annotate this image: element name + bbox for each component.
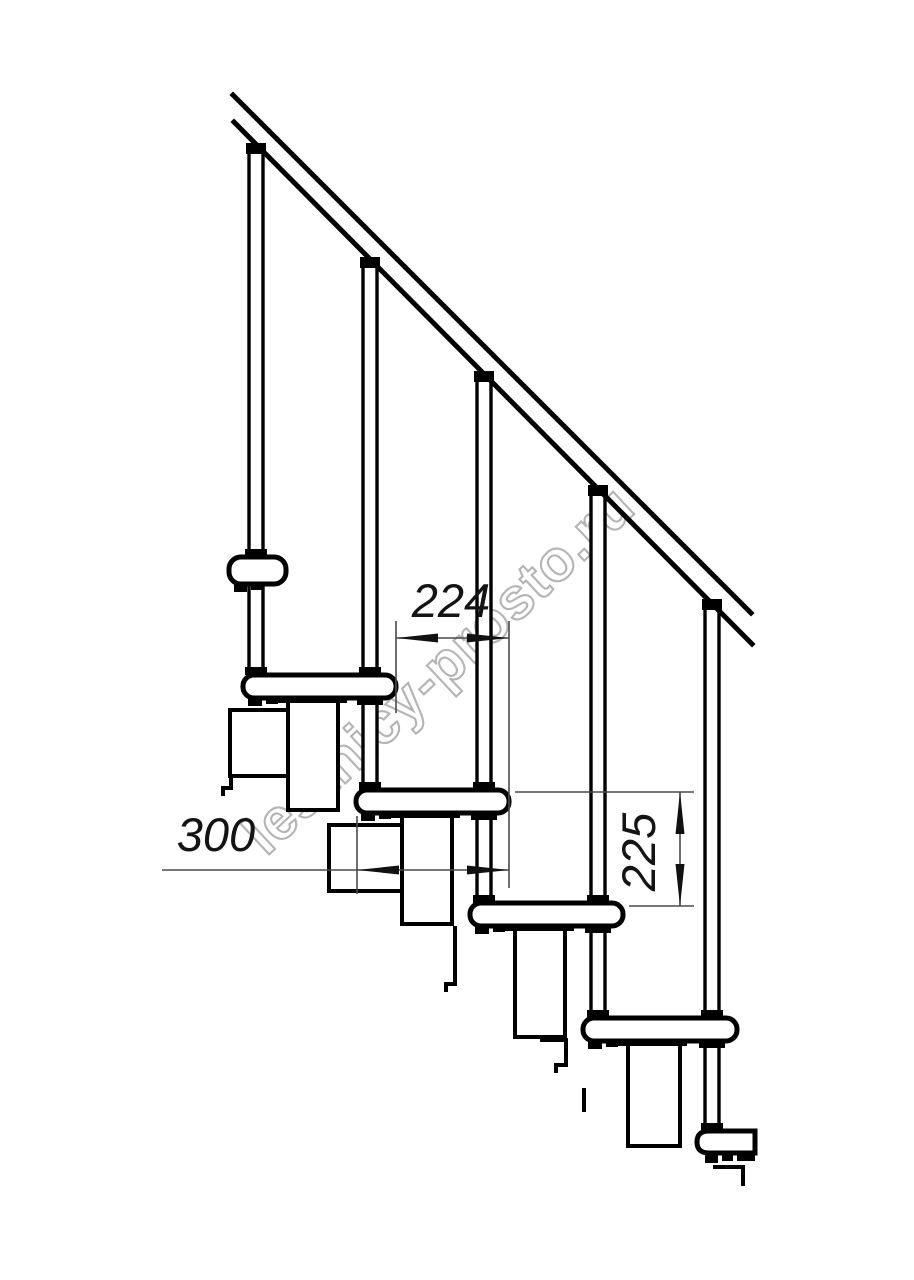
connector-nub [266,697,278,704]
column-module-narrow-5 [628,1042,680,1146]
tread-5 [583,1018,737,1041]
handrail-bottom-edge [234,122,752,644]
nose-nut [357,697,383,705]
rod-body [591,493,605,1018]
connector-bar [617,1039,687,1046]
connector-nub [361,812,375,821]
connector-bar [277,696,347,703]
nose-nut [699,1040,725,1048]
column-module-narrow-2 [288,699,338,810]
connector-nub [606,1040,618,1047]
column-cut-stub-2 [223,776,231,796]
connector-nub [251,584,263,590]
tread-1-nose [229,557,286,584]
rod-body [705,607,719,1131]
column-module-wide-2 [230,710,288,776]
drawing-sheet: lestnicy-prosto.ru [0,0,914,1280]
tread-3 [356,790,509,813]
tread-6-partial [697,1131,755,1153]
connector-nub [234,584,247,592]
connector-nub [588,1040,602,1049]
connector-bar [504,924,574,931]
column-cut-stub-5 [540,1040,566,1073]
baluster-rod-2 [359,257,381,790]
baluster-rod-1 [245,143,267,675]
staircase-technical-drawing: lestnicy-prosto.ru [0,0,914,1280]
arrowhead-down-icon [676,864,685,906]
arrowhead-left-icon [396,634,438,643]
rod-body [363,265,377,790]
connector-nub [737,1152,755,1161]
nose-nut [471,812,497,820]
column-module-narrow-3 [402,814,452,924]
connector-bar [390,811,460,818]
column-cut-stub-6 [713,1167,743,1186]
rod-body [249,151,263,675]
column-cut-stub-4 [446,926,455,992]
dimension-value: 300 [177,808,255,861]
column-module-wide-3 [329,825,403,891]
arrowhead-up-icon [676,792,685,834]
connector-nub [475,925,489,934]
connector-nub [248,697,262,706]
connector-nub [722,1153,733,1161]
dimension-value: 225 [612,812,665,892]
tread-2 [243,675,396,698]
baluster-rod-5 [701,599,723,1131]
column-module-narrow-4 [515,928,565,1037]
baluster-rod-4 [587,485,609,1018]
connector-nub [379,812,391,819]
nose-nut [585,925,611,933]
connector-nub [493,925,505,932]
dimension-value: 224 [411,574,490,627]
tread-4 [470,903,623,926]
connector-nub [705,1153,718,1163]
